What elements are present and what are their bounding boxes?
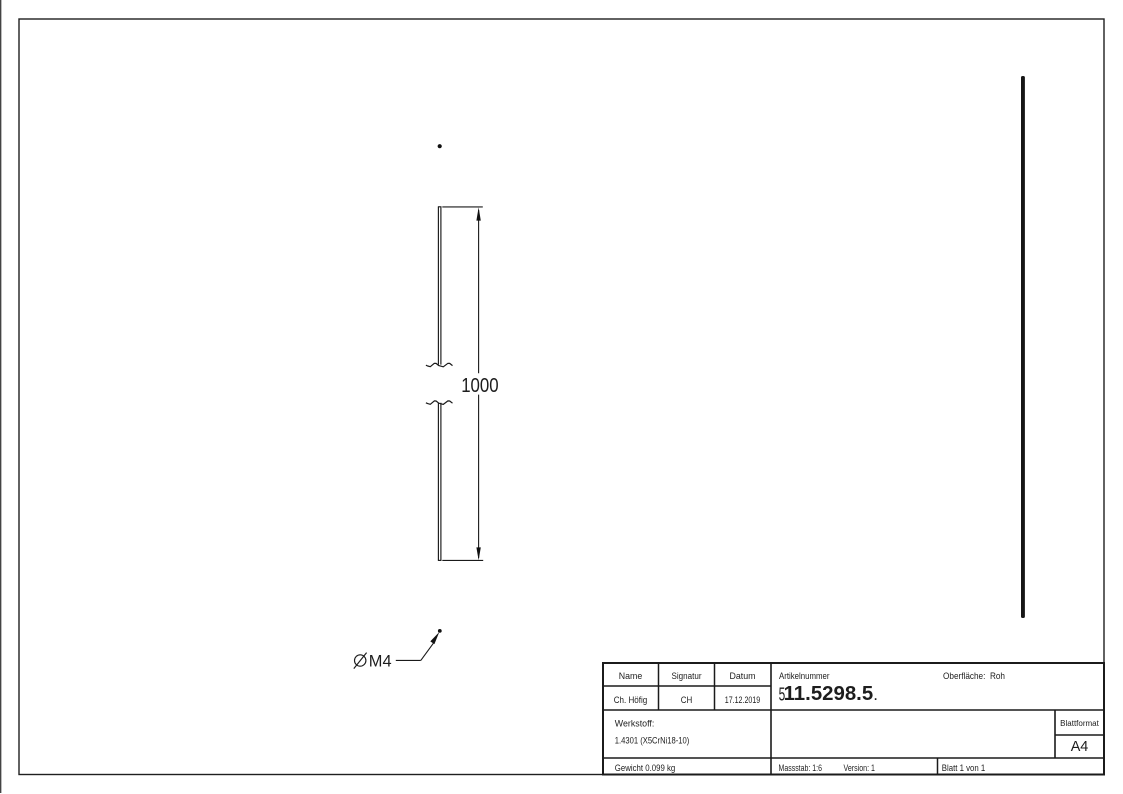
svg-text:.: . bbox=[873, 685, 878, 704]
svg-text:Oberfläche: Roh: Oberfläche: Roh bbox=[943, 670, 1005, 681]
svg-text:CH: CH bbox=[681, 695, 693, 706]
svg-text:1.4301 (X5CrNi18-10): 1.4301 (X5CrNi18-10) bbox=[615, 736, 690, 747]
svg-text:Signatur: Signatur bbox=[672, 671, 703, 682]
svg-text:Gewicht 0.099 kg: Gewicht 0.099 kg bbox=[615, 763, 676, 774]
svg-text:1000: 1000 bbox=[461, 375, 498, 397]
svg-text:Name: Name bbox=[619, 671, 643, 682]
svg-text:Werkstoff:: Werkstoff: bbox=[615, 719, 655, 730]
svg-text:Version: 1: Version: 1 bbox=[844, 763, 876, 774]
svg-text:Blatt 1 von 1: Blatt 1 von 1 bbox=[942, 763, 986, 774]
svg-text:11.5298.5: 11.5298.5 bbox=[784, 683, 874, 705]
svg-text:17.12.2019: 17.12.2019 bbox=[725, 695, 761, 705]
svg-text:Ch. Höfig: Ch. Höfig bbox=[614, 695, 648, 706]
svg-text:Massstab: 1:6: Massstab: 1:6 bbox=[779, 763, 823, 774]
svg-text:A4: A4 bbox=[1071, 739, 1089, 755]
svg-text:Datum: Datum bbox=[730, 671, 756, 682]
svg-text:M4: M4 bbox=[369, 652, 392, 670]
svg-text:Blattformat: Blattformat bbox=[1060, 719, 1099, 728]
svg-text:Artikelnummer: Artikelnummer bbox=[779, 671, 830, 682]
